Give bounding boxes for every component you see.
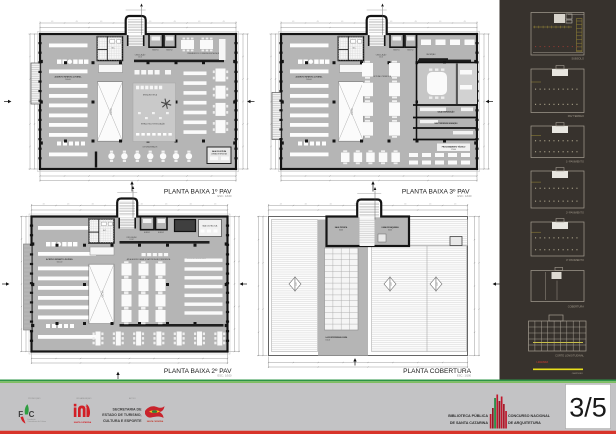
svg-text:420: 420 bbox=[223, 21, 225, 23]
svg-text:B.C.: B.C. bbox=[112, 48, 116, 50]
svg-text:420: 420 bbox=[165, 204, 167, 206]
svg-text:APOIO: APOIO bbox=[129, 397, 136, 400]
svg-text:ESPAÇO MULTI E EDUCAÇÃO: ESPAÇO MULTI E EDUCAÇÃO bbox=[141, 123, 166, 126]
svg-text:B.C.: B.C. bbox=[353, 48, 357, 50]
svg-text:420: 420 bbox=[454, 204, 456, 206]
svg-text:420: 420 bbox=[390, 21, 392, 23]
svg-text:SALA TECNICA: SALA TECNICA bbox=[335, 226, 348, 229]
svg-text:CANTEIRO: CANTEIRO bbox=[572, 372, 584, 375]
svg-text:420: 420 bbox=[439, 21, 441, 23]
svg-text:VAZIO: VAZIO bbox=[100, 290, 103, 297]
svg-text:420: 420 bbox=[92, 204, 94, 206]
svg-text:420: 420 bbox=[51, 21, 53, 23]
svg-text:115.00: 115.00 bbox=[379, 57, 383, 59]
svg-text:LAJE IMPERMEABILIZADA: LAJE IMPERMEABILIZADA bbox=[326, 336, 349, 339]
svg-text:500.00: 500.00 bbox=[65, 79, 71, 81]
svg-text:ELEV 01: ELEV 01 bbox=[394, 50, 400, 52]
svg-text:420: 420 bbox=[100, 21, 102, 23]
svg-text:ESC.: 1/100: ESC.: 1/100 bbox=[218, 194, 233, 198]
svg-text:115.00: 115.00 bbox=[138, 57, 142, 59]
svg-text:ELEV 02: ELEV 02 bbox=[158, 232, 164, 234]
svg-text:420: 420 bbox=[305, 204, 307, 206]
svg-text:420: 420 bbox=[174, 21, 176, 23]
svg-text:ELEV 01: ELEV 01 bbox=[144, 232, 150, 234]
svg-text:420: 420 bbox=[141, 204, 143, 206]
svg-text:3/5: 3/5 bbox=[569, 393, 607, 423]
svg-text:CORTE LONGITUDINAL: CORTE LONGITUDINAL bbox=[555, 354, 584, 358]
svg-text:420: 420 bbox=[67, 204, 69, 206]
svg-text:420: 420 bbox=[198, 21, 200, 23]
svg-text:ORGANIZAÇÃO: ORGANIZAÇÃO bbox=[76, 397, 92, 400]
svg-text:SUBSOLO: SUBSOLO bbox=[571, 57, 584, 61]
svg-text:SANTA CATARINA: SANTA CATARINA bbox=[147, 420, 164, 423]
svg-text:420: 420 bbox=[317, 21, 319, 23]
svg-text:ESC.: 1/100: ESC.: 1/100 bbox=[457, 374, 472, 378]
svg-text:PROMOÇÃO: PROMOÇÃO bbox=[28, 397, 41, 400]
svg-text:420: 420 bbox=[404, 204, 406, 206]
svg-text:ELEV 02: ELEV 02 bbox=[408, 50, 414, 52]
svg-text:SALA DEGRAVAÇÃO: SALA DEGRAVAÇÃO bbox=[438, 111, 456, 114]
svg-text:150.00: 150.00 bbox=[326, 340, 331, 342]
svg-text:DE SANTA CATARINA: DE SANTA CATARINA bbox=[450, 421, 489, 425]
svg-text:DE ARQUITETURA: DE ARQUITETURA bbox=[508, 421, 541, 425]
svg-text:ESTADO DE TURISMO,: ESTADO DE TURISMO, bbox=[102, 413, 141, 417]
svg-text:1º PAVIMENTO: 1º PAVIMENTO bbox=[566, 160, 584, 164]
svg-text:ACERVO INFANTO-JUVENIL: ACERVO INFANTO-JUVENIL bbox=[46, 258, 74, 261]
svg-text:35.00: 35.00 bbox=[339, 230, 343, 232]
svg-text:420: 420 bbox=[464, 21, 466, 23]
svg-text:ESC.: 1/100: ESC.: 1/100 bbox=[458, 194, 473, 198]
svg-text:SANTA CATARINA: SANTA CATARINA bbox=[74, 421, 92, 424]
svg-text:420: 420 bbox=[149, 21, 151, 23]
svg-text:2º PAVIMENTO: 2º PAVIMENTO bbox=[566, 211, 584, 215]
svg-text:500.00: 500.00 bbox=[306, 79, 312, 81]
svg-text:420: 420 bbox=[214, 204, 216, 206]
svg-text:500.00: 500.00 bbox=[57, 262, 63, 264]
svg-text:SECRETARIA DE: SECRETARIA DE bbox=[113, 408, 143, 412]
svg-text:420: 420 bbox=[190, 204, 192, 206]
svg-text:B.C.: B.C. bbox=[103, 230, 107, 232]
svg-text:CULTURA E ESPORTE: CULTURA E ESPORTE bbox=[103, 419, 142, 423]
svg-text:ESC.: 1/100: ESC.: 1/100 bbox=[218, 374, 233, 378]
svg-text:Catarinense de Cultura: Catarinense de Cultura bbox=[28, 420, 46, 423]
svg-text:ELEV 02: ELEV 02 bbox=[167, 50, 173, 52]
svg-text:VAZIO: VAZIO bbox=[109, 108, 112, 115]
svg-text:420: 420 bbox=[76, 21, 78, 23]
svg-text:CONCURSO NACIONAL: CONCURSO NACIONAL bbox=[508, 414, 551, 418]
svg-text:ACERVO INFANTO-JUVENIL: ACERVO INFANTO-JUVENIL bbox=[55, 76, 83, 79]
svg-text:ELEV 01: ELEV 01 bbox=[153, 50, 159, 52]
svg-text:VAZIO: VAZIO bbox=[350, 108, 353, 115]
svg-text:LEITURA LITERATURA: LEITURA LITERATURA bbox=[373, 75, 392, 78]
svg-text:PAV TERREO: PAV TERREO bbox=[568, 114, 584, 118]
svg-text:C: C bbox=[29, 410, 35, 419]
svg-text:420: 420 bbox=[280, 204, 282, 206]
svg-text:3º PAVIMENTO: 3º PAVIMENTO bbox=[566, 258, 584, 262]
svg-text:420: 420 bbox=[330, 204, 332, 206]
svg-text:420: 420 bbox=[429, 204, 431, 206]
svg-text:35.00: 35.00 bbox=[388, 230, 392, 232]
svg-text:420: 420 bbox=[43, 204, 45, 206]
svg-text:170.00: 170.00 bbox=[451, 149, 456, 151]
svg-text:COBERTURA: COBERTURA bbox=[568, 305, 585, 309]
svg-text:ACERVO INFANTO-JUVENIL: ACERVO INFANTO-JUVENIL bbox=[296, 76, 324, 79]
svg-text:BIBLIOTECA PÚBLICA: BIBLIOTECA PÚBLICA bbox=[448, 413, 488, 418]
svg-text:CASA DE MAQUINAS: CASA DE MAQUINAS bbox=[381, 226, 399, 229]
svg-text:PROCESSAMENTO TÉCNICO: PROCESSAMENTO TÉCNICO bbox=[442, 146, 466, 149]
svg-text:115.00: 115.00 bbox=[129, 239, 133, 241]
svg-text:420: 420 bbox=[341, 21, 343, 23]
svg-text:LEGENDA: LEGENDA bbox=[537, 361, 549, 364]
svg-text:420: 420 bbox=[292, 21, 294, 23]
svg-text:420: 420 bbox=[415, 21, 417, 23]
